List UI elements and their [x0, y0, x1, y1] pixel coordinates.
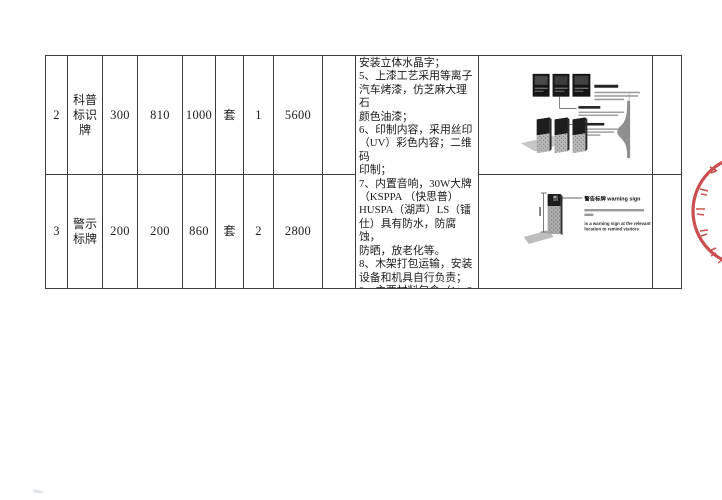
- cell-quantity: 1: [244, 56, 274, 175]
- cell-price: 5600: [274, 56, 323, 175]
- cell-no: 2: [46, 56, 68, 175]
- cell-empty: [323, 175, 356, 288]
- scanned-document-page: 2 科普标识牌 300 810 1000 套 1 5600 安装立体水晶字； 5…: [0, 0, 722, 500]
- dimension-line: [539, 193, 546, 232]
- cell-no: 3: [46, 175, 68, 288]
- warning-sign-heading: 警告标牌 warning sign: [583, 194, 640, 202]
- annotation-top: [594, 85, 640, 100]
- warning-sign-caption-2: location to remind visitors: [584, 226, 639, 231]
- monument-stands: [537, 117, 588, 153]
- cell-figure-science-sign: [479, 56, 653, 175]
- cell-price: 2800: [274, 175, 323, 288]
- cell-dim-d: 200: [138, 175, 183, 288]
- cell-empty-last: [653, 175, 681, 288]
- sign-face-panels: [533, 74, 591, 97]
- cell-dim-h: 860: [183, 175, 216, 288]
- warning-sign-post: [548, 194, 563, 235]
- cell-item-name: 警示标牌: [68, 175, 103, 288]
- cell-quantity: 2: [244, 175, 274, 288]
- red-seal-stamp: [690, 145, 722, 280]
- science-sign-figure: [479, 56, 652, 174]
- cell-empty: [323, 56, 356, 175]
- cell-dim-w: 200: [103, 175, 138, 288]
- warning-sign-figure: 警告标牌 warning sign is a warning sign at t…: [479, 175, 652, 288]
- profile-curve: [617, 101, 630, 159]
- warning-sign-annotation: 警告标牌 warning sign is a warning sign at t…: [583, 194, 651, 231]
- cell-empty-last: [653, 56, 681, 175]
- cell-unit: 套: [216, 175, 244, 288]
- cell-item-name: 科普标识牌: [68, 56, 103, 175]
- cell-dim-h: 1000: [183, 56, 216, 175]
- annotation-middle: [578, 106, 624, 116]
- cell-dim-d: 810: [138, 56, 183, 175]
- cell-unit: 套: [216, 56, 244, 175]
- warning-sign-caption-1: is a warning sign at the relevant: [584, 221, 651, 226]
- quotation-table: 2 科普标识牌 300 810 1000 套 1 5600 安装立体水晶字； 5…: [45, 55, 682, 289]
- scan-smudge: [33, 489, 43, 493]
- cell-figure-warning-sign: 警告标牌 warning sign is a warning sign at t…: [479, 175, 653, 288]
- cell-dim-w: 300: [103, 56, 138, 175]
- cell-remarks: 安装立体水晶字； 5、上漆工艺采用等离子 汽车烤漆，仿芝麻大理石 颜色油漆； 6…: [356, 56, 479, 288]
